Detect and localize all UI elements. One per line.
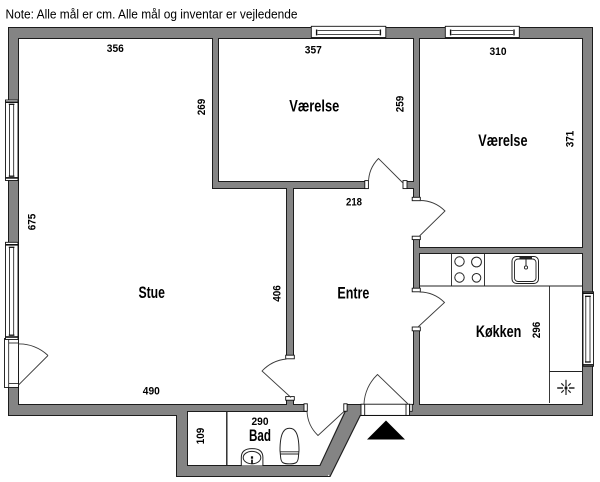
svg-text:Værelse: Værelse [478,132,527,150]
svg-text:Bad: Bad [249,427,271,445]
svg-text:490: 490 [143,386,160,398]
svg-text:675: 675 [26,214,38,231]
svg-text:310: 310 [490,46,507,58]
svg-text:259: 259 [395,96,407,113]
svg-text:218: 218 [346,197,362,209]
svg-text:269: 269 [196,99,208,116]
svg-text:Entre: Entre [337,284,369,302]
svg-text:296: 296 [531,322,543,339]
svg-text:Stue: Stue [138,284,165,302]
svg-text:Køkken: Køkken [476,323,522,341]
svg-text:356: 356 [107,43,124,55]
svg-text:109: 109 [195,428,207,445]
svg-text:Note: Alle mål er cm. Alle mål: Note: Alle mål er cm. Alle mål og invent… [6,8,298,22]
svg-text:Værelse: Værelse [289,98,339,116]
svg-text:371: 371 [565,131,577,148]
svg-text:406: 406 [272,285,284,302]
svg-text:357: 357 [305,45,322,57]
